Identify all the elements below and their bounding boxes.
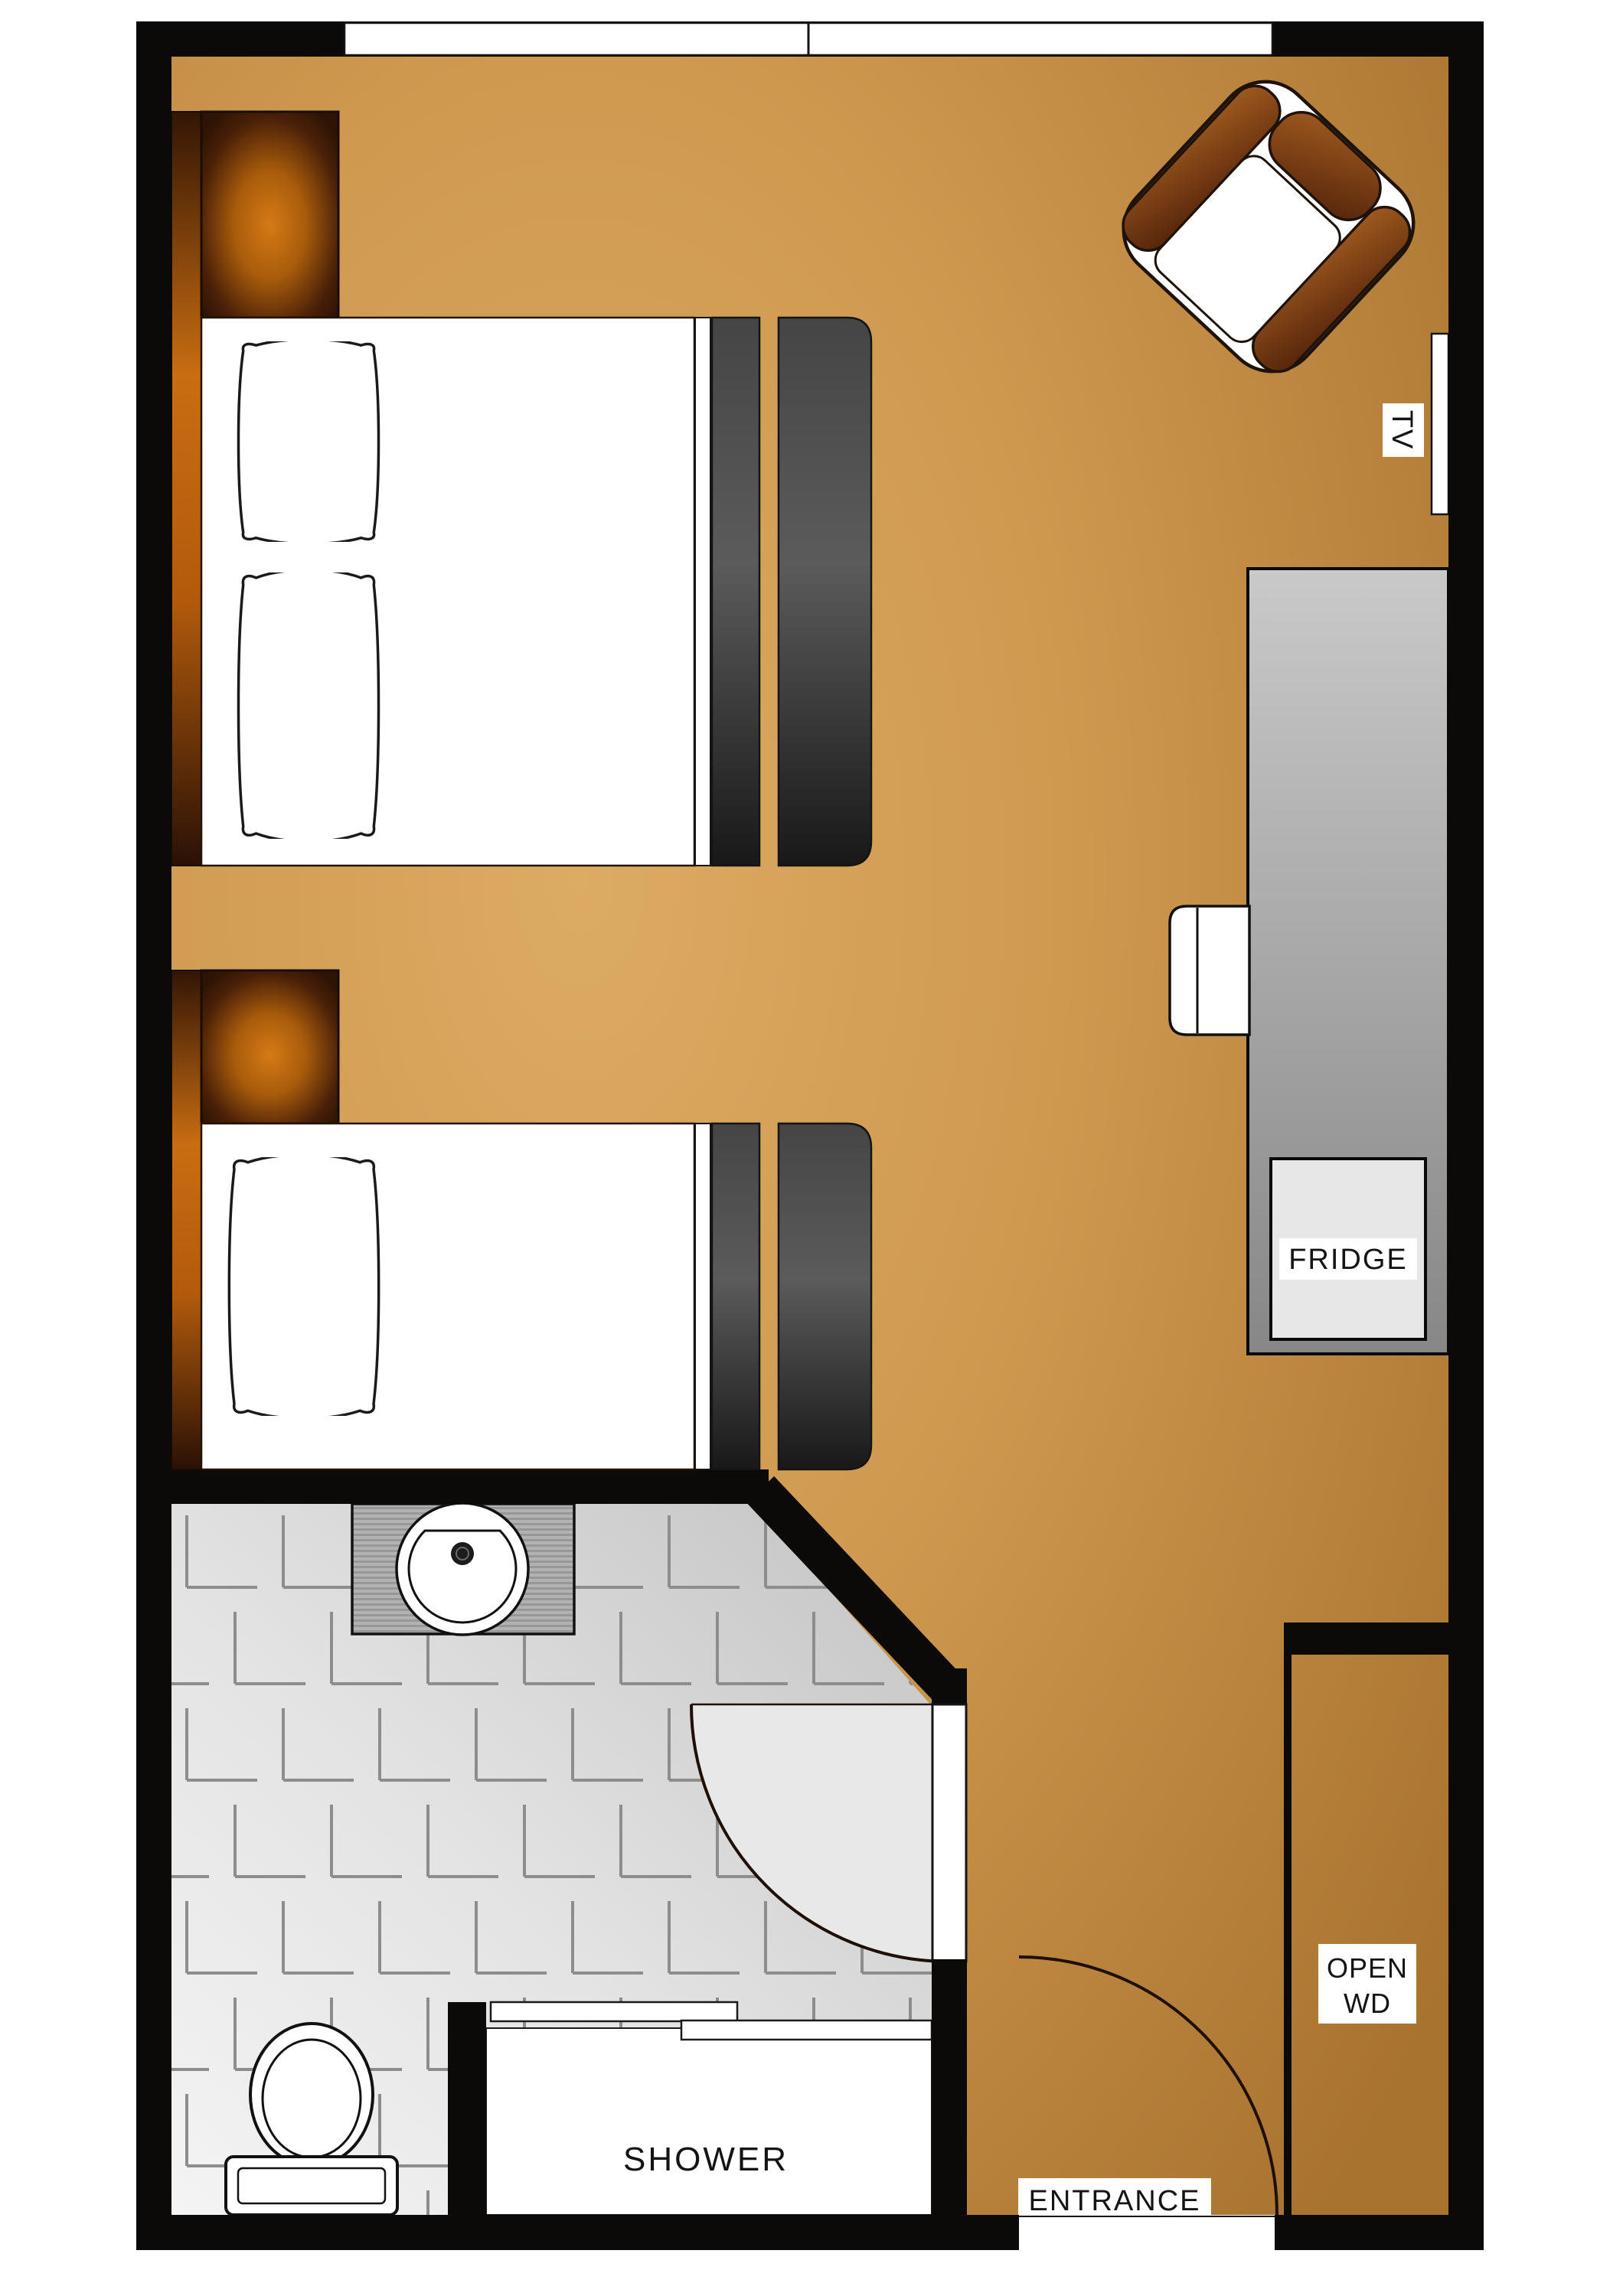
wall-bottom [136, 2215, 1484, 2250]
double-bed-blanket-stripe [712, 318, 759, 866]
bathroom-entry-divider-wall [932, 1959, 967, 2215]
shower: SHOWER [448, 2002, 932, 2215]
fridge-label: FRIDGE [1288, 1244, 1408, 1276]
wall-right [1448, 21, 1484, 2250]
single-bed-headboard [171, 970, 201, 1469]
shower-label: SHOWER [623, 2141, 789, 2178]
closet-side-partition [1284, 1655, 1292, 2215]
toilet-tank-lid [238, 2168, 385, 2203]
double-bed-footboard-runner [779, 318, 871, 866]
double-bed-sheet-fold [695, 318, 710, 866]
shower-sliding-door-panel [491, 2002, 737, 2021]
sink-drain [451, 1542, 474, 1565]
wall-left [136, 21, 171, 2250]
entrance-gap [1019, 2215, 1275, 2250]
single-bed-footboard-runner [779, 1124, 871, 1469]
entrance-opening [1019, 2215, 1275, 2250]
sink-vanity [352, 1503, 574, 1635]
nightstand-lamp [201, 970, 338, 1124]
pillow [229, 1155, 378, 1419]
open-wd-label-line2: WD [1344, 1988, 1391, 2019]
floor-plan-page: SHOWER [0, 0, 1623, 2296]
bathroom-door-panel [932, 1704, 966, 1962]
single-bed-sheet-fold [695, 1124, 710, 1469]
shower-left-wall [448, 2002, 486, 2215]
open-wd-label-line1: OPEN [1327, 1952, 1408, 1984]
bathroom-top-wall [171, 1469, 769, 1504]
pillow [238, 570, 378, 842]
toilet-seat [263, 2040, 361, 2157]
nightstand-lamp [201, 112, 338, 318]
floor-plan-drawing: SHOWER [0, 0, 1623, 2296]
shower-sliding-door-panel [681, 2020, 932, 2040]
tv-screen [1432, 334, 1448, 514]
pillow [238, 339, 378, 543]
shower-floor [486, 2028, 932, 2215]
desk-chair [1170, 906, 1249, 1035]
tv-label: TV [1386, 410, 1418, 451]
double-bed-headboard [171, 112, 201, 866]
entrance-label: ENTRANCE [1028, 2185, 1200, 2217]
bathroom-door-jamb [932, 1668, 967, 1707]
single-bed-blanket-stripe [712, 1124, 759, 1469]
windows [345, 23, 1272, 55]
closet-top-wall [1284, 1623, 1448, 1655]
